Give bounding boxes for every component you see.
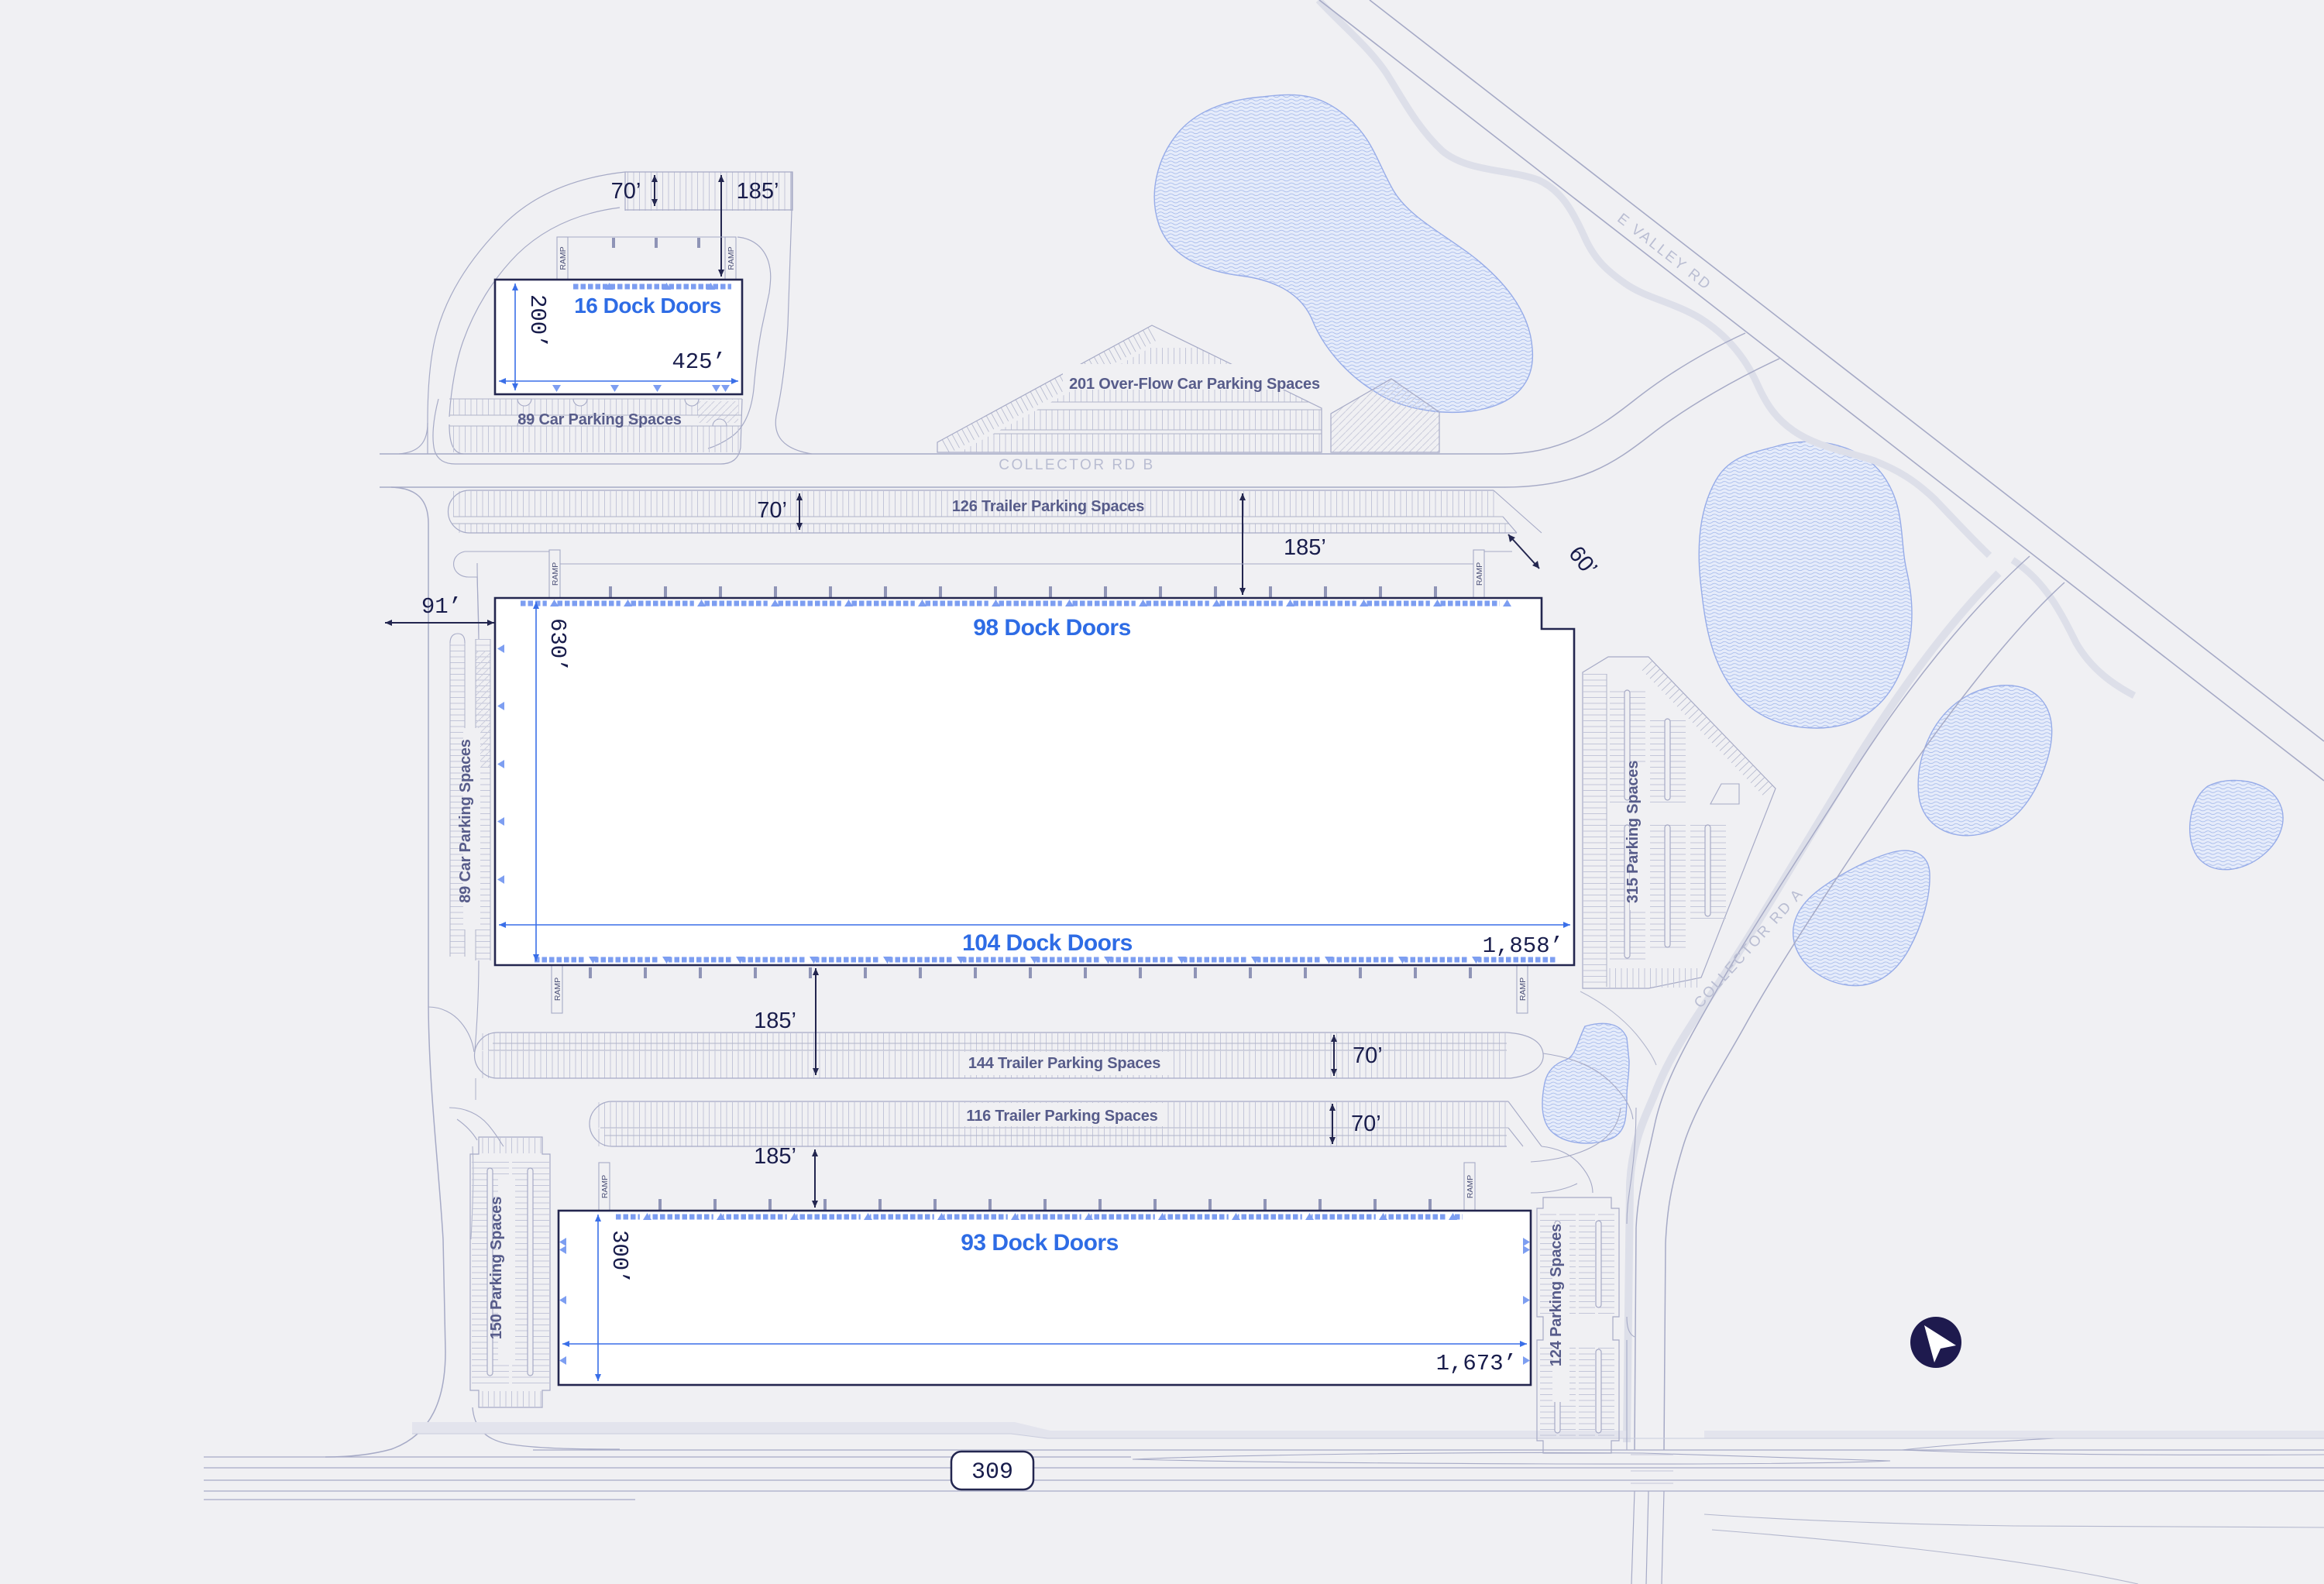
svg-text:16 Dock Doors: 16 Dock Doors <box>574 294 721 318</box>
svg-text:116 Trailer Parking Spaces: 116 Trailer Parking Spaces <box>966 1108 1157 1125</box>
svg-text:89 Car Parking Spaces: 89 Car Parking Spaces <box>457 739 474 903</box>
svg-text:1,673’: 1,673’ <box>1436 1351 1517 1376</box>
svg-text:300’: 300’ <box>607 1230 632 1284</box>
svg-text:70’: 70’ <box>1353 1043 1383 1068</box>
svg-text:89 Car Parking Spaces: 89 Car Parking Spaces <box>517 411 682 428</box>
svg-text:RAMP: RAMP <box>600 1175 610 1198</box>
svg-text:315 Parking Spaces: 315 Parking Spaces <box>1624 761 1642 903</box>
svg-text:630’: 630’ <box>545 618 570 672</box>
svg-text:309: 309 <box>971 1459 1013 1486</box>
svg-text:RAMP: RAMP <box>1466 1175 1475 1198</box>
svg-text:91’: 91’ <box>421 594 462 620</box>
svg-text:185’: 185’ <box>1284 535 1326 560</box>
svg-text:RAMP: RAMP <box>551 562 560 586</box>
svg-text:200’: 200’ <box>524 294 550 349</box>
svg-text:70’: 70’ <box>611 179 641 204</box>
svg-text:150 Parking Spaces: 150 Parking Spaces <box>488 1197 505 1339</box>
svg-text:144 Trailer Parking Spaces: 144 Trailer Parking Spaces <box>968 1055 1160 1072</box>
svg-text:104 Dock Doors: 104 Dock Doors <box>962 930 1133 956</box>
svg-text:RAMP: RAMP <box>1518 978 1528 1001</box>
svg-text:RAMP: RAMP <box>727 246 736 270</box>
svg-text:RAMP: RAMP <box>1475 562 1484 586</box>
svg-text:70’: 70’ <box>757 498 787 523</box>
svg-text:124 Parking Spaces: 124 Parking Spaces <box>1548 1224 1565 1366</box>
svg-text:RAMP: RAMP <box>553 978 562 1001</box>
svg-text:126 Trailer Parking Spaces: 126 Trailer Parking Spaces <box>952 498 1144 515</box>
svg-text:93 Dock Doors: 93 Dock Doors <box>961 1230 1119 1256</box>
svg-text:425’: 425’ <box>672 349 726 375</box>
svg-text:201 Over-Flow Car Parking Spac: 201 Over-Flow Car Parking Spaces <box>1069 376 1320 393</box>
svg-text:185’: 185’ <box>737 179 779 204</box>
svg-text:COLLECTOR RD B: COLLECTOR RD B <box>999 457 1154 473</box>
svg-text:RAMP: RAMP <box>559 246 568 270</box>
svg-text:70’: 70’ <box>1351 1112 1381 1136</box>
svg-text:1,858’: 1,858’ <box>1483 933 1563 959</box>
svg-text:185’: 185’ <box>754 1008 796 1033</box>
svg-text:185’: 185’ <box>754 1144 796 1169</box>
svg-text:98 Dock Doors: 98 Dock Doors <box>973 615 1131 641</box>
